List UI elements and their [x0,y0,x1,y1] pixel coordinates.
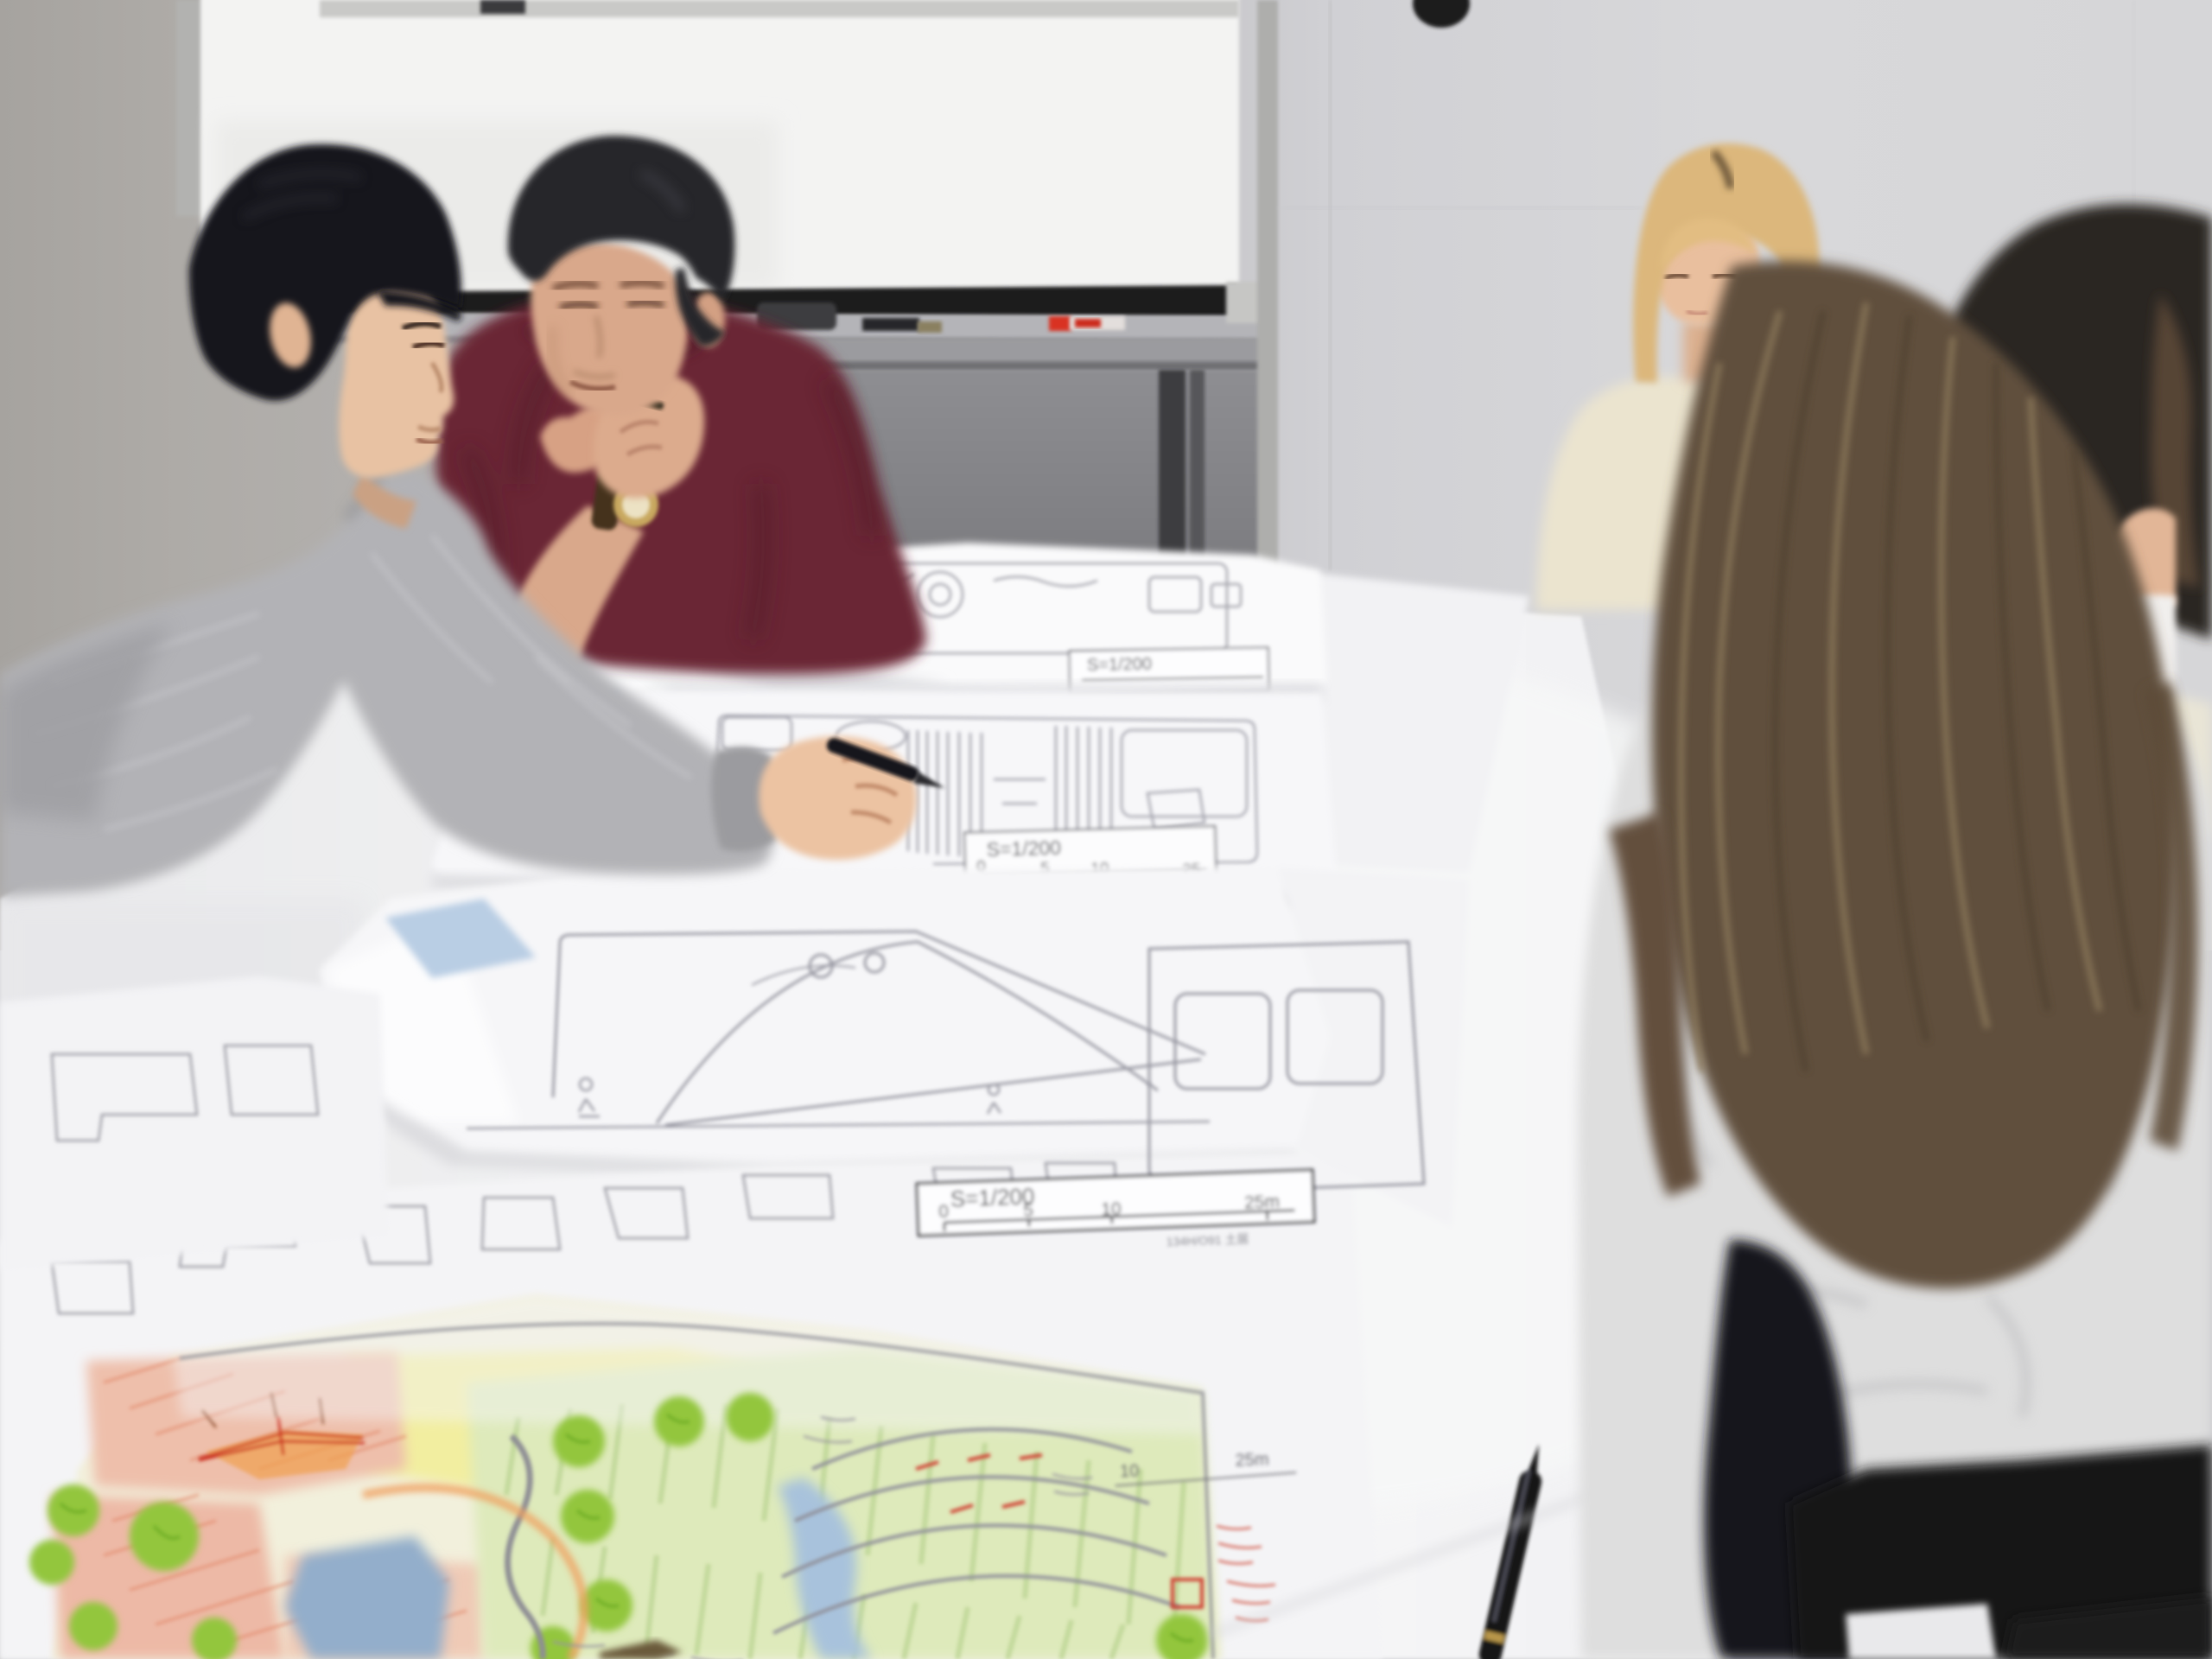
svg-text:134H/O91 土居: 134H/O91 土居 [1166,1232,1249,1249]
svg-text:10: 10 [1120,1462,1140,1482]
svg-text:10: 10 [1101,1199,1122,1220]
svg-text:0: 0 [938,1202,949,1222]
svg-text:S=1/200: S=1/200 [1087,655,1152,675]
svg-text:25m: 25m [1244,1192,1281,1212]
svg-text:S=1/200: S=1/200 [950,1183,1035,1211]
svg-text:25m: 25m [1235,1450,1269,1470]
svg-text:5: 5 [1023,1200,1033,1220]
svg-text:S=1/200: S=1/200 [986,836,1061,861]
